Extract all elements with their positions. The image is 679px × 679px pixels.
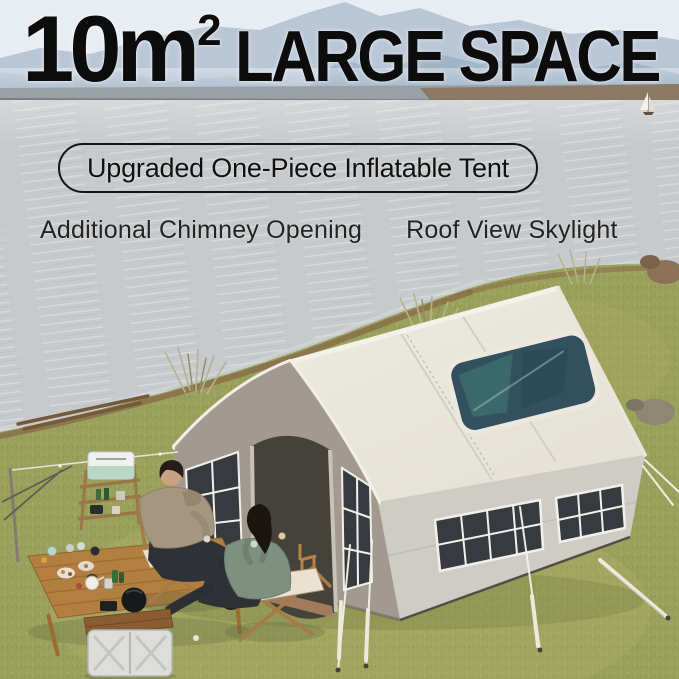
radio-device bbox=[100, 601, 117, 611]
ground-cup bbox=[193, 635, 199, 641]
headline-caption: LARGE SPACE bbox=[235, 21, 659, 93]
feature-roof-skylight: Roof View Skylight bbox=[406, 216, 618, 245]
scene-illustration bbox=[0, 0, 679, 679]
product-image: 10m2 LARGE SPACE Upgraded One-Piece Infl… bbox=[0, 0, 679, 679]
cooler-box bbox=[88, 452, 134, 479]
badge-label: Upgraded One-Piece Inflatable Tent bbox=[87, 153, 509, 184]
headline-measure: 10m bbox=[22, 2, 195, 96]
feature-captions: Additional Chimney Opening Roof View Sky… bbox=[40, 216, 618, 245]
interior-lamp bbox=[279, 533, 286, 540]
feature-chimney-opening: Additional Chimney Opening bbox=[40, 216, 362, 245]
badge-upgraded-tent: Upgraded One-Piece Inflatable Tent bbox=[58, 143, 538, 193]
headline-exponent: 2 bbox=[197, 9, 220, 53]
headline: 10m2 LARGE SPACE bbox=[22, 2, 679, 96]
